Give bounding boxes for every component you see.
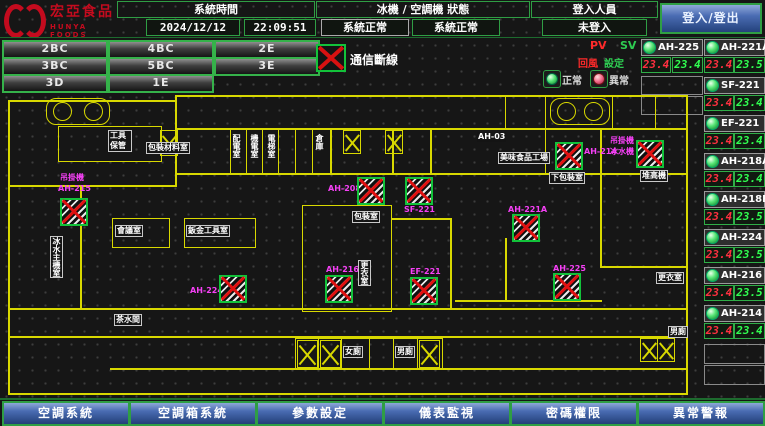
equipment-label: 冰水機 (610, 147, 634, 156)
unit-pv-value: 23.4 (704, 95, 734, 111)
sv-label: SV (620, 39, 636, 52)
wall (450, 218, 452, 310)
login-user-label: 登入人員 (531, 1, 658, 18)
stair-icon (550, 98, 610, 125)
room-label: 包裝材料室 (146, 142, 190, 154)
empty-slot (704, 365, 765, 385)
machine-status-label: 冰機 / 空調機 狀態 (316, 1, 530, 18)
unit-pv-value: 23.4 (704, 133, 734, 149)
unit-button-ah214[interactable]: AH-214 (704, 305, 765, 322)
pv-name-label: 回風 (578, 55, 598, 70)
wall (505, 95, 506, 130)
chiller-status-value: 系統正常 (321, 19, 409, 36)
wall (318, 338, 319, 368)
equipment-icon-ah221a[interactable] (512, 214, 540, 242)
room-label: 配電室 (231, 134, 242, 158)
room-label: 更衣室 (358, 260, 371, 286)
unit-pv-value: 23.4 (704, 323, 734, 339)
unit-status-led (706, 231, 719, 244)
shaft-icon (343, 130, 361, 154)
wall (655, 95, 656, 130)
ahu-status-value: 系統正常 (412, 19, 500, 36)
wall (612, 95, 613, 130)
wall (417, 338, 418, 368)
unit-button-ef221[interactable]: EF-221 (704, 115, 765, 132)
room-label: AH-03 (477, 132, 506, 142)
room-label: 機電室 (249, 134, 260, 158)
unit-sv-value: 23.5 (734, 209, 765, 225)
header-divider (0, 37, 765, 38)
shaft-icon (657, 338, 675, 362)
unit-sv-value: 23.5 (734, 57, 765, 73)
wall (262, 130, 263, 173)
logo-mark-icon (22, 4, 46, 38)
shaft-icon (320, 340, 341, 368)
unit-status-led (706, 79, 719, 92)
room-label: 堆高機 (640, 170, 668, 182)
equipment-label: AH-208 (328, 184, 361, 193)
unit-button-ah218a[interactable]: AH-218A (704, 153, 765, 170)
wall (430, 128, 432, 175)
wall (8, 393, 688, 395)
room-label: 冰水主機室 (50, 236, 63, 278)
shaft-icon (419, 340, 440, 368)
nav-button-param-setting[interactable]: 參數設定 (256, 401, 384, 426)
wall (330, 128, 332, 175)
equipment-icon-ah216[interactable] (325, 275, 353, 303)
room-label: 工具保管 (108, 130, 132, 152)
pv-label: PV (590, 39, 607, 52)
unit-button-ah221a[interactable]: AH-221A (704, 39, 765, 56)
room-label: 女廁 (343, 346, 363, 358)
floor-plan: 吊掛機 AH-215 AH-208 SF-221 AH-214 吊掛機 冰水機 … (0, 88, 703, 400)
unit-sv-value: 23.4 (734, 95, 765, 111)
unit-sv-value: 23.5 (734, 247, 765, 263)
abnormal-label: 異常 (609, 72, 629, 87)
room-label: 茶水間 (114, 314, 142, 326)
nav-button-alarm[interactable]: 異常警報 (637, 401, 765, 426)
equipment-label: 吊掛機 (60, 173, 84, 182)
room-label: 男廁 (668, 326, 688, 338)
unit-pv-value: 23.4 (704, 171, 734, 187)
unit-button-ah218b[interactable]: AH-218B (704, 191, 765, 208)
wall (545, 95, 546, 130)
logo-text: 宏亞食品 (50, 4, 114, 20)
unit-sv-value: 23.4 (734, 171, 765, 187)
room-label: 會議室 (115, 225, 143, 237)
room-label: 倉庫 (314, 134, 325, 150)
wall (278, 130, 279, 173)
wall (369, 338, 370, 368)
equipment-icon-ah208[interactable] (357, 177, 385, 205)
wall (295, 130, 296, 173)
unit-button-ah225[interactable]: AH-225 (641, 39, 703, 56)
green-led-icon (546, 73, 558, 85)
wall (8, 100, 10, 395)
unit-pv-value: 23.4 (704, 247, 734, 263)
login-logout-button[interactable]: 登入/登出 (660, 3, 762, 34)
wall (600, 173, 602, 266)
sv-name-label: 設定 (604, 55, 624, 70)
wall (8, 185, 177, 187)
unit-pv-value: 23.4 (704, 57, 734, 73)
empty-slot (704, 344, 765, 364)
equipment-label: 吊掛機 (610, 136, 634, 145)
equipment-label: AH-215 (58, 184, 91, 193)
system-clock-value: 22:09:51 (244, 19, 316, 36)
comm-loss-label: 通信斷線 (350, 51, 398, 68)
equipment-icon-ah214[interactable] (555, 142, 583, 170)
unit-pv-value: 23.4 (641, 57, 671, 73)
wall (341, 338, 342, 368)
wall (393, 338, 394, 368)
room-label: 下包裝室 (549, 172, 585, 184)
equipment-label: AH-221A (508, 205, 547, 214)
nav-button-password-auth[interactable]: 密碼權限 (510, 401, 638, 426)
room-label: 男廁 (395, 346, 415, 358)
stair-icon (46, 98, 110, 125)
unit-pv-value: 23.4 (704, 285, 734, 301)
unit-sv-value: 23.4 (734, 133, 765, 149)
equipment-icon-ef221[interactable] (410, 277, 438, 305)
unit-sv-value: 23.5 (734, 285, 765, 301)
wall (686, 95, 688, 395)
room-label: 美味食品工場 (498, 152, 550, 164)
nav-button-hvac-system[interactable]: 空調系統 (2, 401, 130, 426)
wall (312, 130, 313, 173)
red-led-icon (593, 73, 605, 85)
unit-sv-value: 23.4 (672, 57, 703, 73)
wall (392, 218, 450, 220)
system-date-value: 2024/12/12 (146, 19, 240, 36)
unit-status-led (706, 41, 719, 54)
unit-pv-value: 23.4 (704, 209, 734, 225)
shaft-icon (640, 338, 658, 362)
hunya-logo: 宏亞食品 HUNYA FOODS (2, 1, 114, 37)
floor-button-3e[interactable]: 3E (214, 57, 320, 76)
room-label: 更衣室 (656, 272, 684, 284)
equipment-icon-ah224[interactable] (219, 275, 247, 303)
equipment-label: EF-221 (410, 267, 441, 276)
unit-button-ah216[interactable]: AH-216 (704, 267, 765, 284)
normal-led (543, 70, 561, 88)
unit-status-led (643, 41, 656, 54)
equipment-icon-sf221[interactable] (405, 177, 433, 205)
unit-button-ah224[interactable]: AH-224 (704, 229, 765, 246)
unit-button-sf221[interactable]: SF-221 (704, 77, 765, 94)
unit-sv-value: 23.4 (734, 323, 765, 339)
room-label: 包裝室 (352, 211, 380, 223)
equipment-label: AH-216 (326, 265, 359, 274)
room-label: 電梯室 (266, 134, 277, 158)
unit-status-led (706, 269, 719, 282)
shaft-icon (297, 340, 318, 368)
room-label: 鈑金工具室 (186, 225, 230, 237)
wall (246, 130, 247, 173)
unit-status-led (706, 117, 719, 130)
equipment-icon-ah225[interactable] (553, 273, 581, 301)
unit-status-led (706, 307, 719, 320)
login-user-value: 未登入 (542, 19, 647, 36)
equipment-icon-ah215[interactable] (60, 198, 88, 226)
normal-label: 正常 (562, 72, 582, 87)
shaft-icon (385, 130, 403, 154)
system-time-label: 系統時間 (117, 1, 315, 18)
equipment-label: SF-221 (404, 205, 435, 214)
unit-status-led (706, 193, 719, 206)
nav-divider (0, 398, 765, 400)
comm-loss-icon (316, 44, 346, 72)
equipment-label: AH-225 (553, 264, 586, 273)
wall (600, 266, 686, 268)
hmi-screen: 宏亞食品 HUNYA FOODS 系統時間 2024/12/12 22:09:5… (0, 0, 765, 426)
unit-status-led (706, 155, 719, 168)
equipment-label: AH-224 (190, 286, 223, 295)
equipment-icon-hoist[interactable] (636, 140, 664, 168)
nav-button-ahu-system[interactable]: 空調箱系統 (129, 401, 257, 426)
abnormal-led (590, 70, 608, 88)
wall (505, 238, 507, 300)
nav-button-meter-monitor[interactable]: 儀表監視 (383, 401, 511, 426)
